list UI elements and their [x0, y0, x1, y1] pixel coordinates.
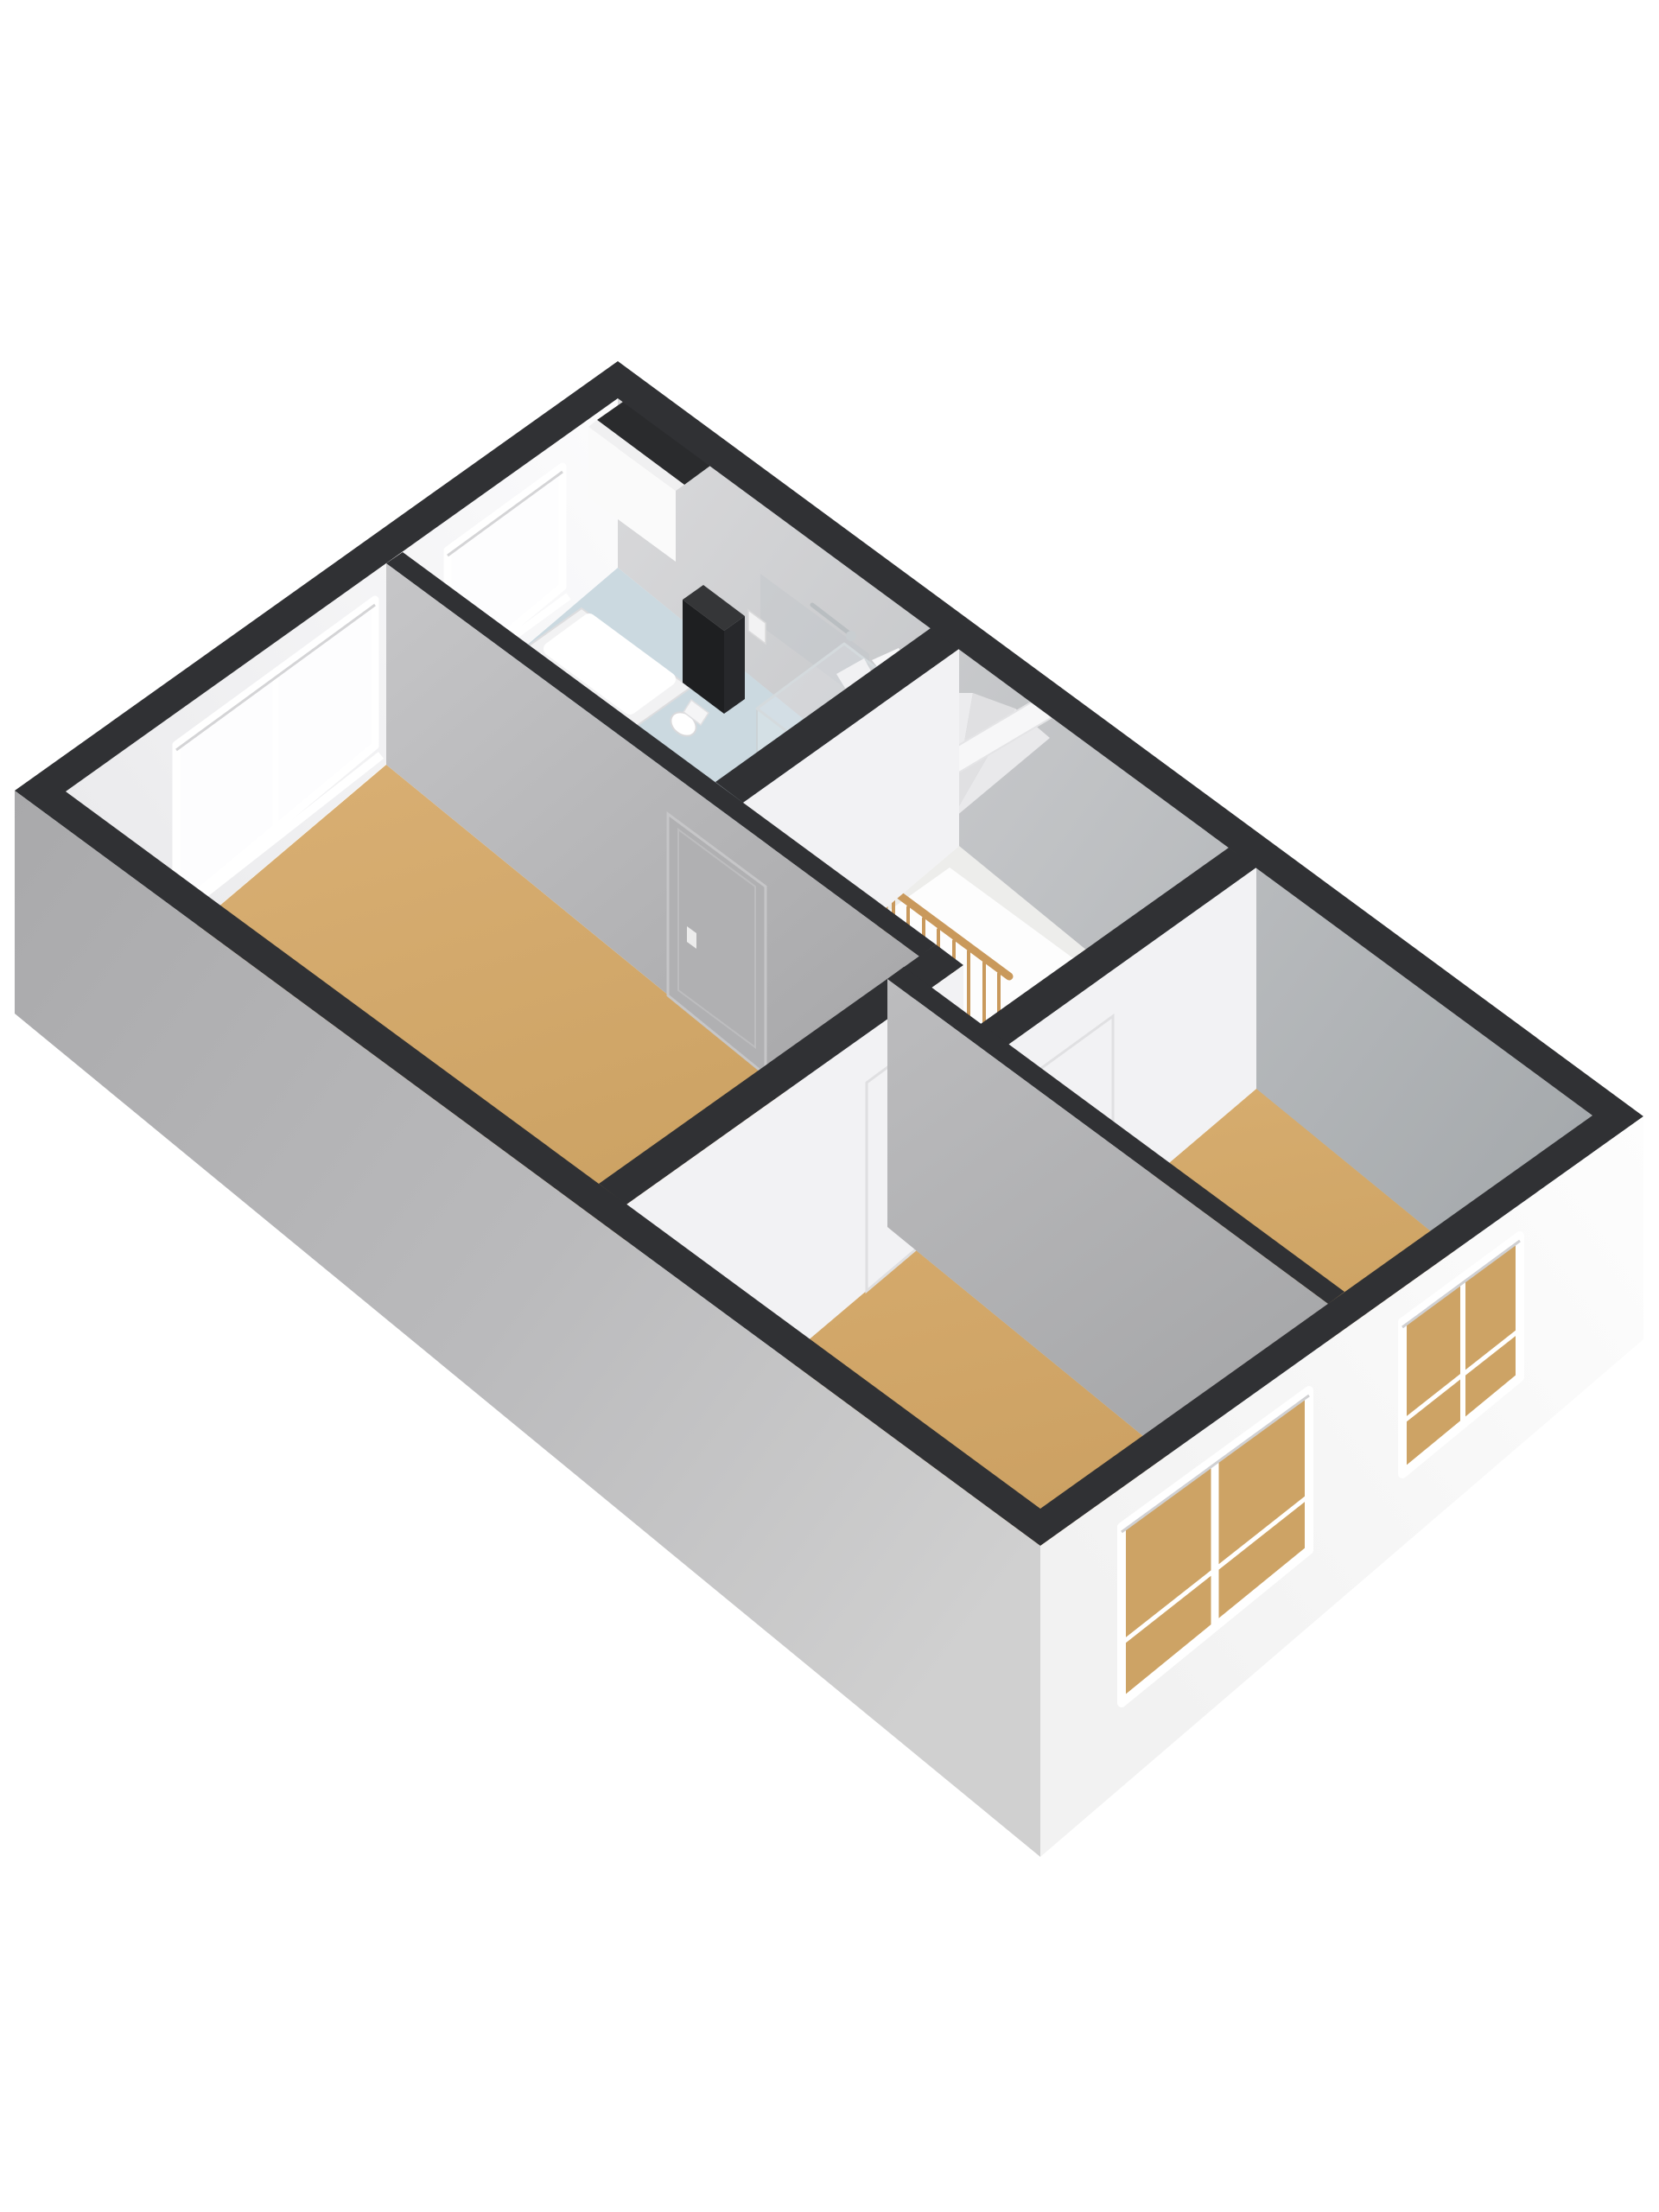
shower-head	[846, 631, 856, 641]
floorplan-canvas	[0, 0, 1659, 2212]
cabinet-side	[724, 616, 745, 714]
floorplan-3d-render: 3D floor plan render — upper floor (axon…	[0, 0, 1659, 2212]
